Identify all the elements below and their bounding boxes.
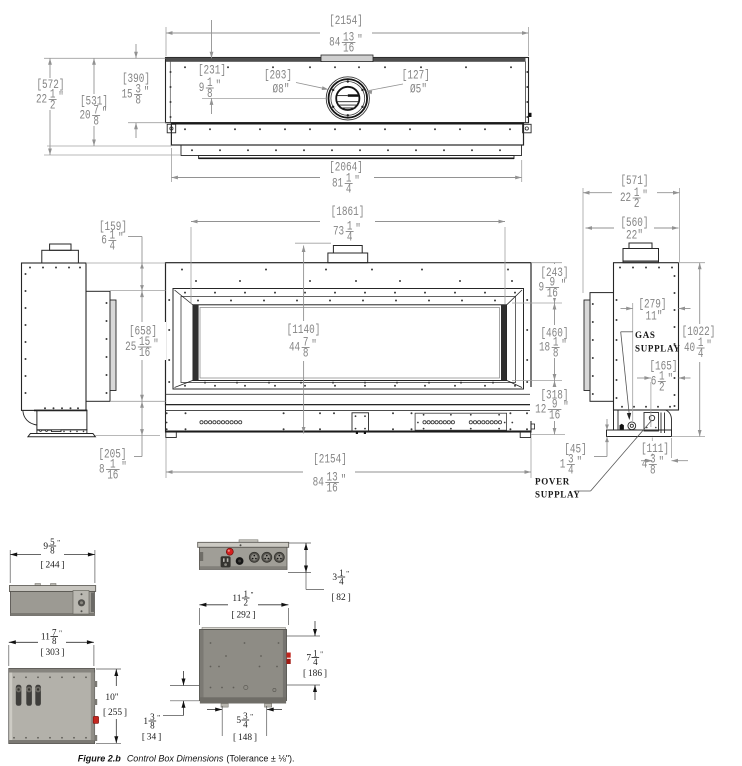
svg-text:": " <box>667 372 673 386</box>
svg-text:": " <box>59 629 62 638</box>
svg-text:GAS: GAS <box>635 330 656 340</box>
svg-text:SUPPLAY: SUPPLAY <box>635 344 681 354</box>
svg-text:": " <box>57 538 60 547</box>
svg-text:": " <box>153 338 159 352</box>
svg-text:[ 34 ]: [ 34 ] <box>142 733 161 743</box>
svg-text:": " <box>658 455 664 469</box>
svg-text:4: 4 <box>642 456 648 471</box>
svg-text:40: 40 <box>684 340 695 355</box>
svg-text:": " <box>561 338 567 352</box>
svg-text:": " <box>346 569 349 578</box>
svg-text:[ 148 ]: [ 148 ] <box>233 733 257 743</box>
svg-text:8: 8 <box>99 461 105 476</box>
svg-text:": " <box>563 400 569 414</box>
svg-text:[127]: [127] <box>402 68 430 83</box>
svg-text:": " <box>102 106 108 120</box>
svg-text:8: 8 <box>150 720 155 730</box>
svg-text:": " <box>320 650 323 659</box>
svg-text:2: 2 <box>243 597 248 607</box>
svg-text:": " <box>354 174 360 188</box>
svg-text:": " <box>250 590 253 599</box>
svg-text:": " <box>311 338 317 352</box>
svg-text:6: 6 <box>651 373 657 388</box>
svg-text:[2154]: [2154] <box>329 13 363 28</box>
svg-text:11: 11 <box>232 594 241 604</box>
svg-text:20: 20 <box>79 107 90 122</box>
svg-text:9: 9 <box>538 279 544 294</box>
svg-text:": " <box>157 713 160 722</box>
svg-text:9: 9 <box>43 542 48 552</box>
svg-text:[ 244 ]: [ 244 ] <box>40 561 64 571</box>
svg-text:11: 11 <box>41 632 50 642</box>
svg-text:8: 8 <box>50 545 55 555</box>
svg-text:9: 9 <box>199 80 205 95</box>
svg-text:5: 5 <box>236 716 241 726</box>
svg-text:44: 44 <box>289 339 300 354</box>
svg-text:": " <box>118 231 124 245</box>
svg-text:POVER: POVER <box>535 477 570 487</box>
svg-text:1: 1 <box>143 717 148 727</box>
svg-text:[ 82 ]: [ 82 ] <box>331 593 350 603</box>
svg-text:3: 3 <box>332 573 337 583</box>
svg-text:81: 81 <box>332 175 343 190</box>
svg-text:84: 84 <box>329 34 340 49</box>
svg-text:": " <box>561 278 567 292</box>
svg-text:Figure 2.bControl Box Dimensio: Figure 2.bControl Box Dimensions(Toleran… <box>78 754 295 764</box>
svg-text:73: 73 <box>333 223 344 238</box>
svg-text:": " <box>341 473 347 487</box>
svg-text:[203]: [203] <box>264 68 292 83</box>
svg-text:22: 22 <box>36 91 47 106</box>
svg-text:22: 22 <box>620 190 631 205</box>
svg-text:11″: 11″ <box>646 309 663 324</box>
svg-text:[ 186 ]: [ 186 ] <box>303 669 327 679</box>
svg-text:": " <box>121 460 127 474</box>
svg-text:4: 4 <box>243 719 248 729</box>
svg-text:": " <box>215 79 221 93</box>
svg-text:Ø8″: Ø8″ <box>273 82 290 97</box>
svg-text:": " <box>642 189 648 203</box>
svg-text:15: 15 <box>121 86 132 101</box>
svg-text:[ 255 ]: [ 255 ] <box>103 708 127 718</box>
svg-text:1: 1 <box>560 456 566 471</box>
svg-text:6: 6 <box>101 232 107 247</box>
svg-text:[ 303 ]: [ 303 ] <box>40 648 64 658</box>
svg-text:84: 84 <box>313 474 324 489</box>
svg-text:Ø5″: Ø5″ <box>410 82 427 97</box>
svg-text:12: 12 <box>535 401 546 416</box>
svg-text:": " <box>144 85 150 99</box>
svg-text:": " <box>355 222 361 236</box>
svg-text:4: 4 <box>339 576 344 586</box>
svg-text:[2154]: [2154] <box>313 452 347 467</box>
svg-text:[ 292 ]: [ 292 ] <box>231 611 255 621</box>
svg-text:SUPPLAY: SUPPLAY <box>535 490 581 500</box>
svg-text:": " <box>576 455 582 469</box>
svg-text:25: 25 <box>125 339 136 354</box>
svg-text:7: 7 <box>306 653 311 663</box>
svg-text:[1861]: [1861] <box>331 204 365 219</box>
svg-text:": " <box>357 33 363 47</box>
svg-text:": " <box>58 90 64 104</box>
svg-text:": " <box>250 712 253 721</box>
svg-text:8: 8 <box>52 636 57 646</box>
svg-text:10": 10" <box>105 693 118 703</box>
svg-text:18: 18 <box>539 339 550 354</box>
svg-text:4: 4 <box>313 657 318 667</box>
svg-text:": " <box>706 339 712 353</box>
svg-text:22″: 22″ <box>626 228 643 243</box>
